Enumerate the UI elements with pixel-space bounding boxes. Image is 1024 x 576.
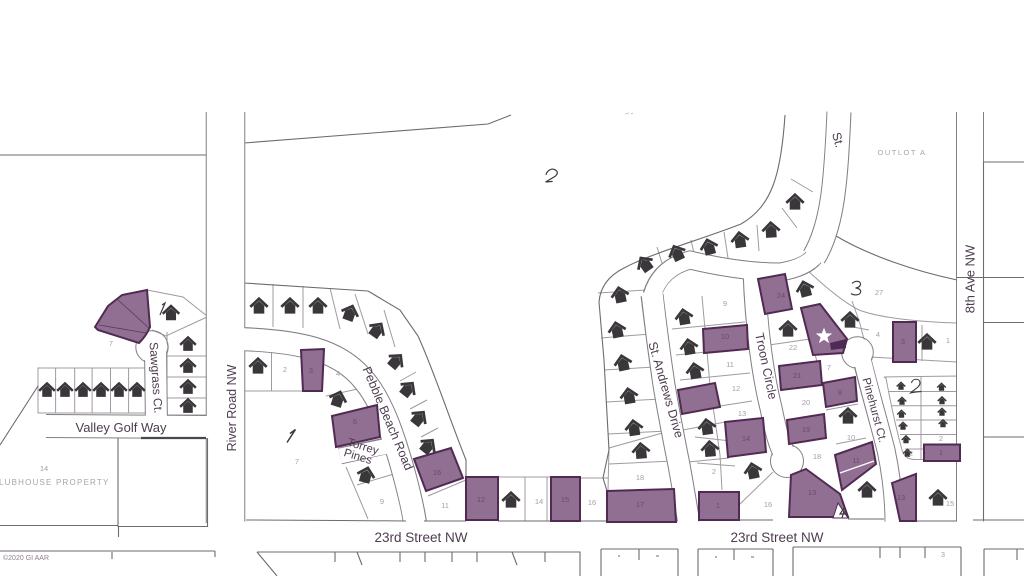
svg-text:2: 2	[939, 434, 943, 443]
svg-text:4: 4	[336, 369, 340, 378]
svg-text:12: 12	[732, 384, 740, 393]
svg-text:14: 14	[742, 434, 750, 443]
svg-text:2: 2	[909, 449, 913, 458]
svg-text:11: 11	[441, 501, 449, 510]
svg-text:23rd Street NW: 23rd Street NW	[730, 530, 823, 545]
svg-text:3: 3	[309, 366, 313, 375]
svg-text:2: 2	[712, 467, 716, 476]
svg-text:8th Ave NW: 8th Ave NW	[963, 244, 978, 313]
svg-text:9: 9	[380, 497, 384, 506]
svg-text:13: 13	[808, 488, 816, 497]
svg-text:16: 16	[588, 498, 596, 507]
svg-text:OUTLOT A: OUTLOT A	[878, 148, 927, 157]
svg-text:17: 17	[636, 500, 644, 509]
svg-text:16: 16	[433, 468, 441, 477]
svg-text:10: 10	[847, 433, 855, 442]
svg-text:CLUBHOUSE PROPERTY: CLUBHOUSE PROPERTY	[0, 478, 109, 487]
svg-text:18: 18	[636, 473, 644, 482]
svg-text:23rd Street NW: 23rd Street NW	[374, 530, 467, 545]
svg-text:21: 21	[793, 371, 801, 380]
svg-text:7: 7	[109, 339, 113, 348]
svg-text:15: 15	[946, 499, 954, 508]
svg-text:8: 8	[838, 388, 842, 397]
svg-text:7: 7	[295, 457, 299, 466]
svg-text:1: 1	[716, 501, 720, 510]
svg-text:20: 20	[802, 398, 810, 407]
svg-text:13: 13	[897, 493, 905, 502]
svg-text:©2020 GI AAR: ©2020 GI AAR	[3, 554, 49, 562]
svg-text:15: 15	[561, 495, 569, 504]
svg-text:24: 24	[777, 291, 785, 300]
svg-text:1: 1	[946, 336, 950, 345]
svg-text:11: 11	[726, 360, 734, 369]
svg-text:10: 10	[721, 332, 729, 341]
svg-text:1: 1	[939, 448, 943, 457]
svg-text:6: 6	[353, 417, 357, 426]
svg-text:18: 18	[813, 452, 821, 461]
svg-text:16: 16	[764, 500, 772, 509]
svg-text:9: 9	[723, 299, 727, 308]
svg-text:22: 22	[789, 343, 797, 352]
svg-text:27: 27	[875, 288, 883, 297]
svg-text:12: 12	[477, 495, 485, 504]
svg-text:7: 7	[827, 363, 831, 372]
svg-text:11: 11	[852, 456, 860, 465]
svg-text:3: 3	[901, 337, 905, 346]
svg-text:14: 14	[40, 464, 48, 473]
svg-text:2: 2	[283, 365, 287, 374]
svg-text:13: 13	[738, 409, 746, 418]
svg-text:14: 14	[535, 497, 543, 506]
svg-text:River Road NW: River Road NW	[225, 364, 239, 451]
svg-text:19: 19	[802, 425, 810, 434]
svg-text:4: 4	[876, 330, 880, 339]
svg-text:3: 3	[941, 550, 945, 559]
svg-text:Valley Golf Way: Valley Golf Way	[75, 420, 167, 435]
